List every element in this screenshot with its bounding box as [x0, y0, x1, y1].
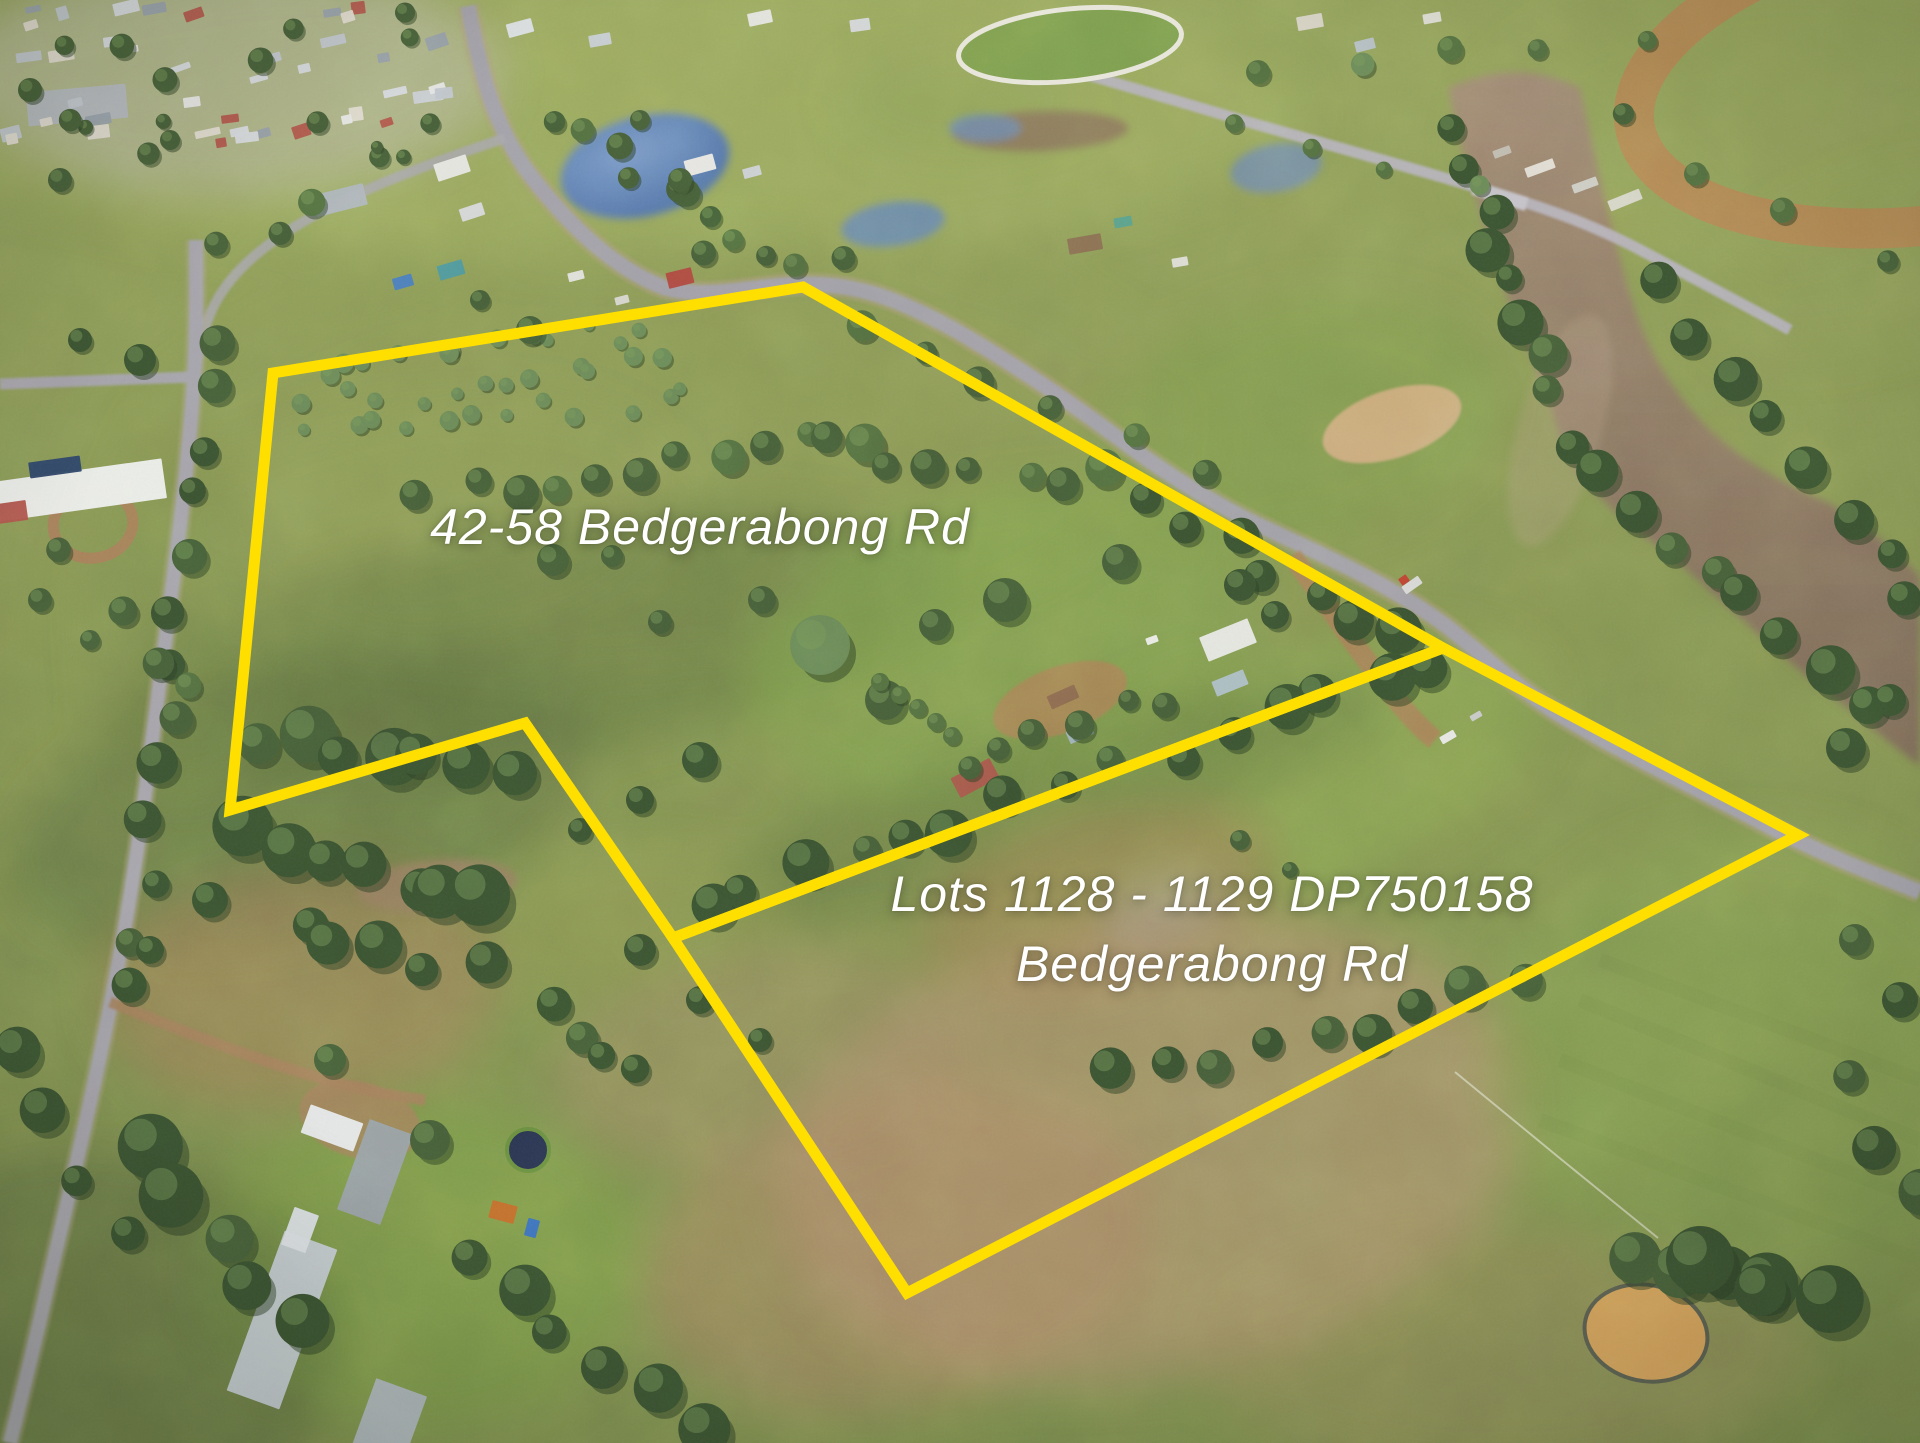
vignette: [0, 0, 1920, 1443]
aerial-photo: [0, 0, 1920, 1443]
aerial-photo-stage: 42-58 Bedgerabong Rd Lots 1128 - 1129 DP…: [0, 0, 1920, 1443]
